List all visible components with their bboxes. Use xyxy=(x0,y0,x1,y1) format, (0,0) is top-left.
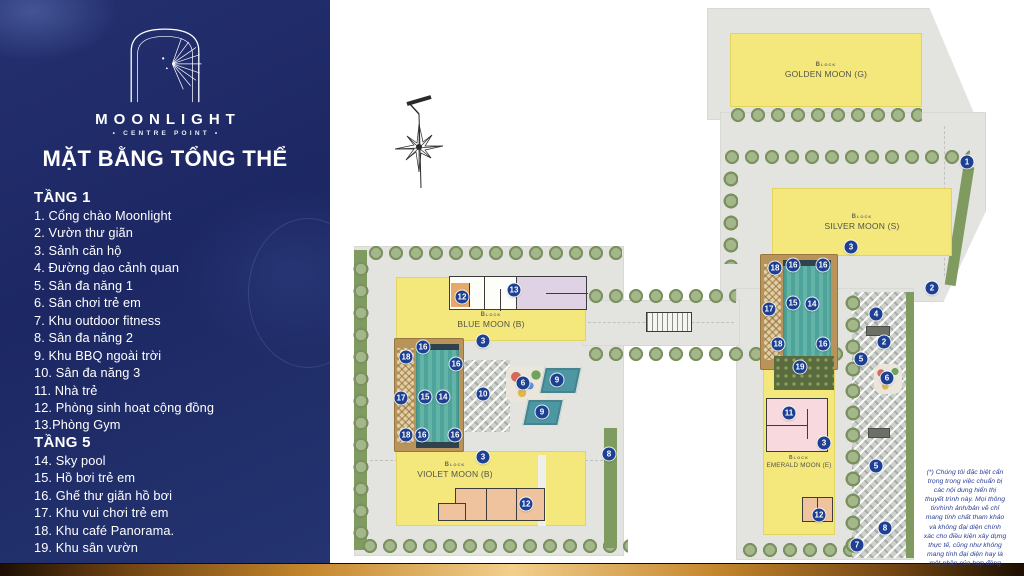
block-emerald-moon-label: Block EMERALD MOON (E) xyxy=(763,455,835,469)
map-marker-15: 15 xyxy=(787,297,800,310)
block-name: GOLDEN MOON (G) xyxy=(785,69,867,79)
map-marker-6: 6 xyxy=(881,372,894,385)
legend: TẦNG 1 1. Cổng chào Moonlight2. Vườn thư… xyxy=(34,189,314,557)
legend-item: 2. Vườn thư giãn xyxy=(34,224,314,241)
map-marker-16: 16 xyxy=(817,338,830,351)
map-marker-5: 5 xyxy=(855,353,868,366)
page-title: MẶT BẰNG TỔNG THỂ xyxy=(0,146,330,172)
map-marker-11: 11 xyxy=(783,407,796,420)
legend-item: 11. Nhà trẻ xyxy=(34,382,314,399)
brand-tagline: • CENTRE POINT • xyxy=(0,130,330,137)
pergola xyxy=(868,428,890,438)
legend-item: 3. Sảnh căn hộ xyxy=(34,242,314,259)
map-marker-19: 19 xyxy=(794,361,807,374)
map-marker-3: 3 xyxy=(477,451,490,464)
map-marker-7: 7 xyxy=(851,539,864,552)
tree-column xyxy=(352,258,370,540)
legend-item: 4. Đường dạo cảnh quan xyxy=(34,259,314,276)
gatehouse xyxy=(646,312,692,332)
map-marker-16: 16 xyxy=(449,429,462,442)
block-label: Block xyxy=(816,62,837,68)
moonlight-logo-icon xyxy=(95,20,235,104)
disclaimer-note: (*) Chúng tôi đặc biệt cẩn trọng trong v… xyxy=(908,468,1022,568)
tree-row xyxy=(366,244,622,262)
tree-row xyxy=(586,287,736,303)
map-marker-6: 6 xyxy=(517,377,530,390)
legend-item: 17. Khu vui chơi trẻ em xyxy=(34,504,314,521)
legend-item: 10. Sân đa năng 3 xyxy=(34,364,314,381)
legend-item: 15. Hồ bơi trẻ em xyxy=(34,469,314,486)
map-marker-18: 18 xyxy=(769,262,782,275)
legend-item: 14. Sky pool xyxy=(34,452,314,469)
map-marker-9: 9 xyxy=(536,406,549,419)
brand-name: MOONLIGHT xyxy=(0,111,330,128)
map-marker-10: 10 xyxy=(477,388,490,401)
map-marker-3: 3 xyxy=(477,335,490,348)
legend-item: 6. Sân chơi trẻ em xyxy=(34,294,314,311)
map-marker-5: 5 xyxy=(870,460,883,473)
tree-row xyxy=(722,148,970,164)
tree-column xyxy=(722,168,738,264)
footer-gold-bar xyxy=(0,563,1024,576)
map-marker-16: 16 xyxy=(416,429,429,442)
legend-item: 13.Phòng Gym xyxy=(34,416,314,433)
pool-shade xyxy=(416,442,459,448)
tree-row xyxy=(728,106,922,122)
legend-item: 16. Ghế thư giãn hồ bơi xyxy=(34,487,314,504)
map-marker-14: 14 xyxy=(806,298,819,311)
legend-item: 18. Khu café Panorama. xyxy=(34,522,314,539)
legend-item: 1. Cổng chào Moonlight xyxy=(34,207,314,224)
map-marker-4: 4 xyxy=(870,308,883,321)
brand-logo: MOONLIGHT • CENTRE POINT • xyxy=(0,20,330,137)
map-marker-8: 8 xyxy=(603,448,616,461)
block-violet-moon-label: Block VIOLET MOON (B) xyxy=(390,462,520,479)
map-marker-16: 16 xyxy=(450,358,463,371)
map-marker-17: 17 xyxy=(395,392,408,405)
map-marker-16: 16 xyxy=(817,259,830,272)
block-silver-moon: Block SILVER MOON (S) xyxy=(772,188,952,256)
pergola xyxy=(866,326,890,336)
legend-list-floor1: 1. Cổng chào Moonlight2. Vườn thư giãn3.… xyxy=(34,207,314,434)
floorplan-violet-step xyxy=(438,503,466,521)
legend-list-floor5: 14. Sky pool15. Hồ bơi trẻ em16. Ghế thư… xyxy=(34,452,314,557)
legend-item: 8. Sân đa năng 2 xyxy=(34,329,314,346)
block-blue-moon-label: Block BLUE MOON (B) xyxy=(396,312,586,329)
map-marker-2: 2 xyxy=(878,336,891,349)
block-name: SILVER MOON (S) xyxy=(824,221,899,231)
map-marker-3: 3 xyxy=(845,241,858,254)
compass-icon xyxy=(385,88,455,193)
map-marker-18: 18 xyxy=(400,429,413,442)
legend-item: 12. Phòng sinh hoạt cộng đồng xyxy=(34,399,314,416)
block-label: Block xyxy=(789,455,809,461)
map-marker-2: 2 xyxy=(926,282,939,295)
legend-item: 19. Khu sân vườn xyxy=(34,539,314,556)
sidebar: MOONLIGHT • CENTRE POINT • MẶT BẰNG TỔNG… xyxy=(0,0,330,563)
legend-heading-floor5: TẦNG 5 xyxy=(34,434,314,452)
map-marker-9: 9 xyxy=(551,374,564,387)
block-golden-moon: Block GOLDEN MOON (G) xyxy=(730,33,922,107)
map-marker-12: 12 xyxy=(456,291,469,304)
map-marker-16: 16 xyxy=(417,341,430,354)
map-marker-15: 15 xyxy=(419,391,432,404)
map-marker-13: 13 xyxy=(508,284,521,297)
legend-item: 9. Khu BBQ ngoài trời xyxy=(34,347,314,364)
map-marker-12: 12 xyxy=(813,509,826,522)
map-marker-8: 8 xyxy=(879,522,892,535)
block-name: EMERALD MOON (E) xyxy=(766,462,831,469)
tree-column xyxy=(844,292,860,558)
tree-row xyxy=(360,537,628,555)
block-label: Block xyxy=(445,462,466,468)
map-marker-12: 12 xyxy=(520,498,533,511)
legend-heading-floor1: TẦNG 1 xyxy=(34,189,314,207)
map-marker-17: 17 xyxy=(763,303,776,316)
block-name: VIOLET MOON (B) xyxy=(417,469,493,479)
planting-strip xyxy=(604,428,617,548)
block-name: BLUE MOON (B) xyxy=(457,319,524,329)
map-marker-18: 18 xyxy=(772,338,785,351)
block-label: Block xyxy=(852,214,873,220)
legend-item: 7. Khu outdoor fitness xyxy=(34,312,314,329)
map-marker-18: 18 xyxy=(400,351,413,364)
site-plan: Block GOLDEN MOON (G) Block SILVER MOON … xyxy=(330,0,1024,563)
map-marker-1: 1 xyxy=(961,156,974,169)
legend-item: 5. Sân đa năng 1 xyxy=(34,277,314,294)
map-marker-14: 14 xyxy=(437,391,450,404)
map-marker-16: 16 xyxy=(787,259,800,272)
block-label: Block xyxy=(481,312,502,318)
map-marker-3: 3 xyxy=(818,437,831,450)
